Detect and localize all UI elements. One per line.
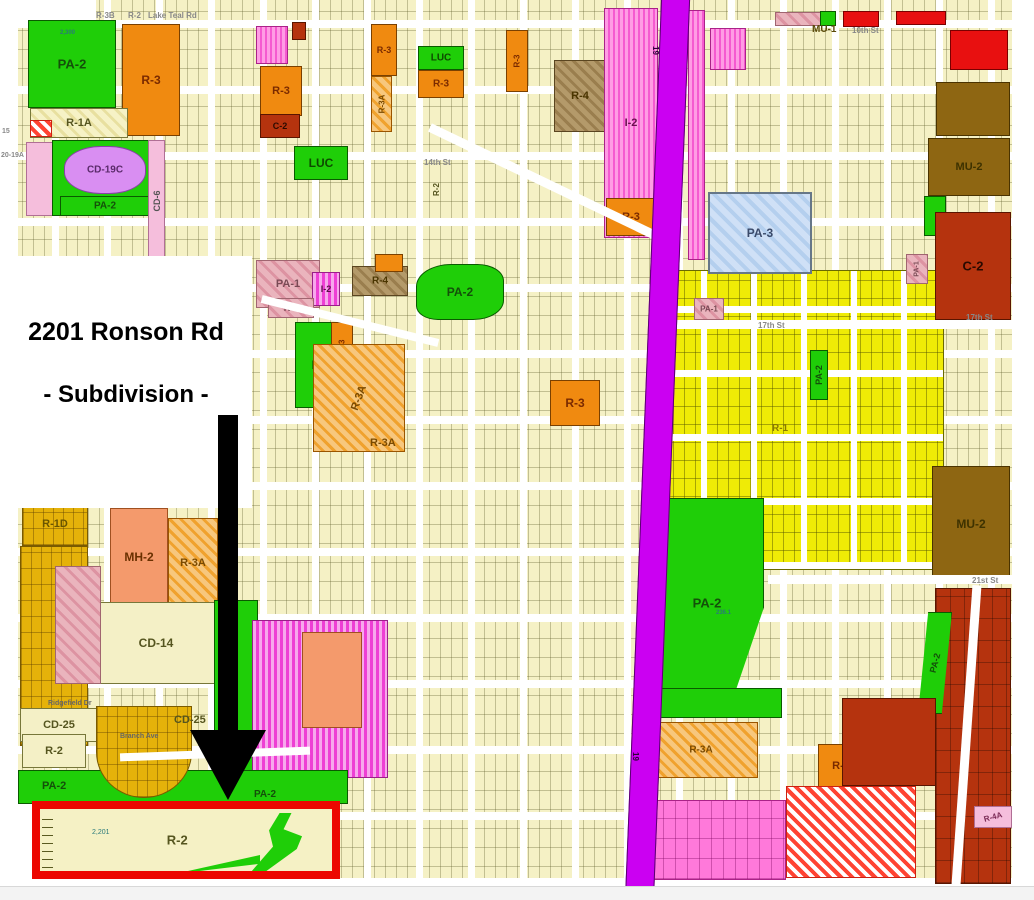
pointer-arrow-head-icon	[190, 730, 266, 800]
zone-label: PA-2	[447, 285, 473, 299]
zone-label: LUC	[309, 156, 334, 170]
map-zone	[950, 30, 1008, 70]
map-label: Lake Teal Rd	[148, 11, 197, 20]
zone-label: PA-2	[928, 652, 943, 674]
map-label: 20-19A	[1, 152, 24, 159]
zone-label: PA-2	[693, 596, 722, 611]
map-zone-luc: LUC	[418, 46, 464, 70]
map-zone	[0, 0, 96, 22]
zone-label: PA-3	[747, 226, 773, 240]
map-zone-i-2: I-2	[312, 272, 340, 306]
annotation-box: 2201 Ronson Rd - Subdivision -	[0, 256, 252, 508]
map-zone-r-3: R-3	[260, 66, 302, 116]
map-label: 2,300	[60, 30, 75, 36]
zone-label: R-3A	[377, 95, 386, 114]
window-bottom-bar	[0, 886, 1034, 900]
zoning-map-canvas[interactable]: R-1DPA-2R-3R-1ACD-19CPA-2CD-6R-3C-2LUCR-…	[0, 0, 1012, 886]
map-label: 17th St	[758, 321, 785, 330]
zone-label: CD-19C	[87, 165, 123, 176]
zone-label: I-2	[321, 284, 332, 294]
map-label: 15	[2, 128, 10, 135]
zone-label: LUC	[431, 53, 452, 64]
zone-label: R-3	[272, 85, 290, 97]
map-zone-c-2: C-2	[260, 114, 300, 138]
map-zone	[650, 688, 782, 718]
zone-label: R-3	[377, 45, 392, 55]
map-zone	[688, 10, 705, 260]
annotation-subtitle: - Subdivision -	[0, 381, 252, 409]
map-zone-r-3: R-3	[418, 70, 464, 98]
map-zone	[30, 120, 52, 137]
zone-label: PA-1	[276, 278, 300, 290]
zone-label: CD-25	[43, 719, 75, 731]
zone-label: PA-2	[58, 57, 87, 72]
map-label: 10th St	[852, 26, 879, 35]
map-zone-pa-1: PA-1	[906, 254, 928, 284]
greenbelt-shape	[188, 855, 260, 871]
map-zone	[843, 11, 879, 27]
map-zone-r-3: R-3	[506, 30, 528, 92]
map-label: 19	[631, 752, 640, 761]
map-zone-pa-2: PA-2	[416, 264, 504, 320]
zone-label: R-3	[513, 55, 522, 68]
map-label: R-2	[128, 11, 141, 20]
zone-label: R-4	[372, 276, 388, 287]
map-label: R-3A	[370, 437, 396, 449]
map-zone	[55, 566, 101, 684]
pointer-arrow-shaft	[218, 415, 238, 733]
zone-label: R-3A	[180, 557, 206, 569]
map-zone	[292, 22, 306, 40]
map-label: 14th St	[424, 158, 451, 167]
parcel-number: 2,201	[92, 829, 110, 836]
zone-label: R-3A	[689, 745, 712, 756]
map-zone-r-3: R-3	[371, 24, 397, 76]
zoning-map-page: R-1DPA-2R-3R-1ACD-19CPA-2CD-6R-3C-2LUCR-…	[0, 0, 1034, 900]
annotation-title: 2201 Ronson Rd	[0, 318, 252, 347]
map-zone-mu-2: MU-2	[928, 138, 1010, 196]
map-zone	[375, 254, 403, 272]
zone-label: R-1A	[66, 117, 92, 129]
map-zone-r-3a: R-3A	[644, 722, 758, 778]
map-zone-r-1d: R-1D	[22, 502, 88, 546]
map-zone-c-2: C-2	[935, 212, 1011, 320]
zone-label: CD-6	[152, 190, 162, 211]
zone-label: MU-2	[956, 517, 985, 531]
parcel-strip	[42, 812, 53, 868]
map-zone	[710, 28, 746, 70]
map-zone-pa-1: PA-1	[694, 298, 724, 320]
map-zone-r-3a: R-3A	[168, 518, 218, 608]
zone-label: I-2	[625, 117, 638, 129]
map-zone-pa-2: PA-2	[810, 350, 828, 400]
parcel-zone-label: R-2	[167, 833, 188, 848]
map-zone	[0, 798, 32, 886]
zone-label: R-3	[433, 79, 449, 90]
map-zone-luc: LUC	[294, 146, 348, 180]
map-zone-r-3: R-3	[122, 24, 180, 136]
zone-label: PA-2	[94, 201, 116, 212]
map-label: R-2	[432, 183, 441, 196]
map-label: PA-2	[42, 780, 66, 792]
zone-label: R-2	[45, 745, 63, 757]
zone-label: C-2	[273, 121, 288, 131]
map-zone	[302, 632, 362, 728]
map-label: R-3B	[96, 11, 115, 20]
map-zone-r-4: R-4	[554, 60, 606, 132]
map-zone	[936, 82, 1010, 136]
subject-parcel-highlight: 2,201 R-2	[32, 801, 340, 879]
zone-label: MU-2	[956, 161, 983, 173]
map-label: 21st St	[972, 576, 998, 585]
map-zone-cd-6: CD-6	[148, 140, 165, 262]
map-label: 17th St	[966, 313, 993, 322]
map-zone-pa-2: PA-2	[60, 196, 150, 216]
map-zone-r-4a: R-4A	[974, 806, 1012, 828]
map-zone-pa-3: PA-3	[708, 192, 812, 274]
map-zone-r-3a: R-3A	[371, 76, 392, 132]
zone-label: PA-1	[700, 305, 718, 314]
map-label: 236.1	[716, 610, 731, 616]
zone-label: CD-14	[139, 636, 174, 650]
zone-label: R-3A	[349, 384, 369, 412]
map-zone	[256, 26, 288, 64]
map-zone-r-3a: R-3A	[313, 344, 405, 452]
map-label: Branch Ave	[120, 733, 158, 740]
map-zone	[26, 142, 54, 216]
map-zone-r-3: R-3	[550, 380, 600, 426]
map-zone-mu-2: MU-2	[932, 466, 1010, 582]
zone-label: C-2	[963, 259, 984, 274]
map-zone-mh-2: MH-2	[110, 508, 168, 606]
zone-label: PA-2	[814, 365, 824, 385]
zone-label: MH-2	[124, 550, 153, 564]
map-zone-r-2: R-2	[22, 734, 86, 768]
map-zone	[896, 11, 946, 25]
map-zone	[638, 800, 786, 880]
map-label: R-1	[772, 423, 788, 434]
map-label: 19	[651, 46, 660, 55]
map-zone	[786, 786, 916, 878]
zone-label: R-4A	[983, 810, 1003, 824]
map-label: MU-1	[812, 24, 836, 35]
zone-label: PA-1	[914, 261, 921, 276]
zone-label: R-3	[141, 73, 160, 87]
zone-label: R-4	[571, 90, 589, 102]
map-zone	[842, 698, 936, 786]
map-zone-cd-19c: CD-19C	[64, 146, 146, 194]
street	[652, 320, 1012, 329]
zone-label: R-1D	[42, 518, 68, 530]
zone-label: R-3	[565, 396, 584, 410]
map-zone-cd-14: CD-14	[92, 602, 220, 684]
map-label: CD-25	[174, 714, 206, 726]
map-label: Ridgefield Dr	[48, 700, 92, 707]
